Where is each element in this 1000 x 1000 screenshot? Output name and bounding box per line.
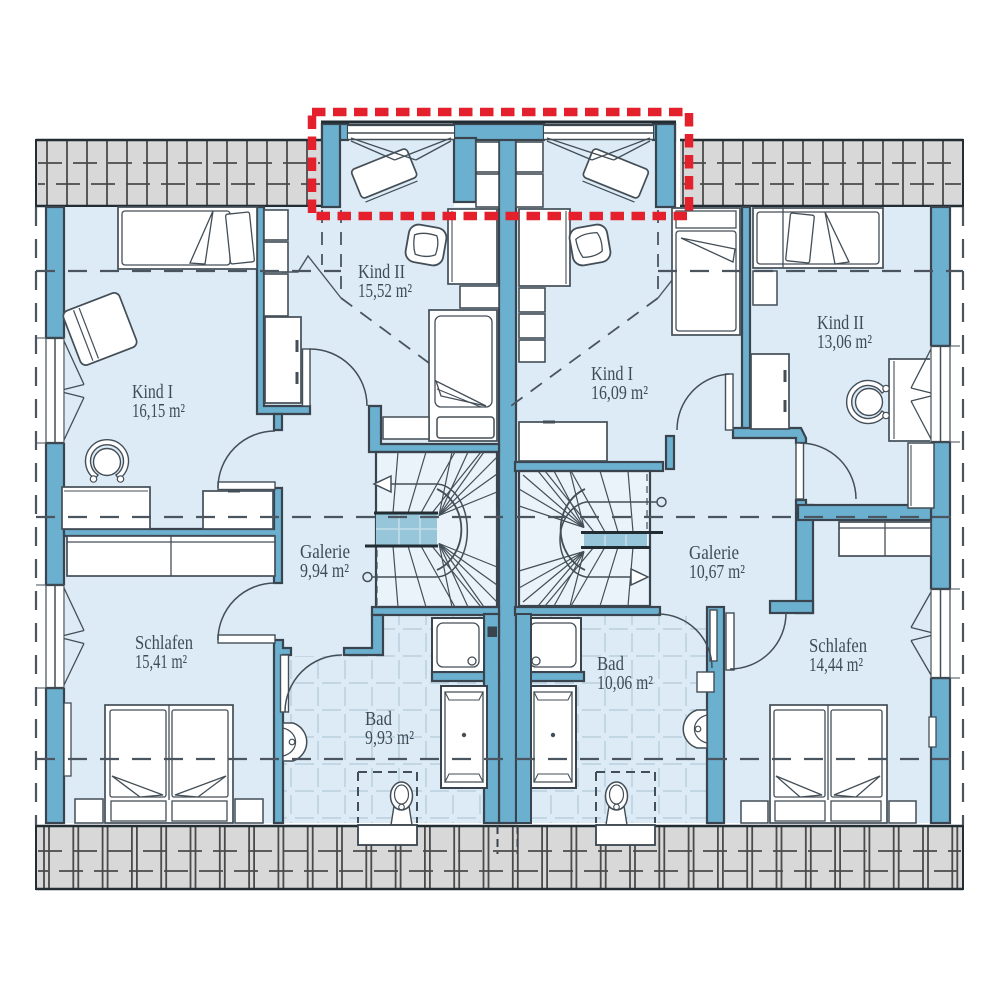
svg-text:14,44 m²: 14,44 m² bbox=[809, 654, 863, 676]
svg-text:9,93 m²: 9,93 m² bbox=[365, 727, 414, 749]
svg-text:15,52 m²: 15,52 m² bbox=[358, 280, 412, 302]
svg-text:16,15 m²: 16,15 m² bbox=[132, 400, 185, 422]
svg-text:15,41 m²: 15,41 m² bbox=[135, 651, 187, 673]
svg-text:10,67 m²: 10,67 m² bbox=[689, 561, 745, 583]
svg-text:9,94 m²: 9,94 m² bbox=[300, 560, 349, 582]
svg-text:13,06 m²: 13,06 m² bbox=[817, 331, 872, 353]
svg-text:16,09 m²: 16,09 m² bbox=[591, 382, 648, 404]
svg-text:10,06 m²: 10,06 m² bbox=[597, 672, 653, 694]
